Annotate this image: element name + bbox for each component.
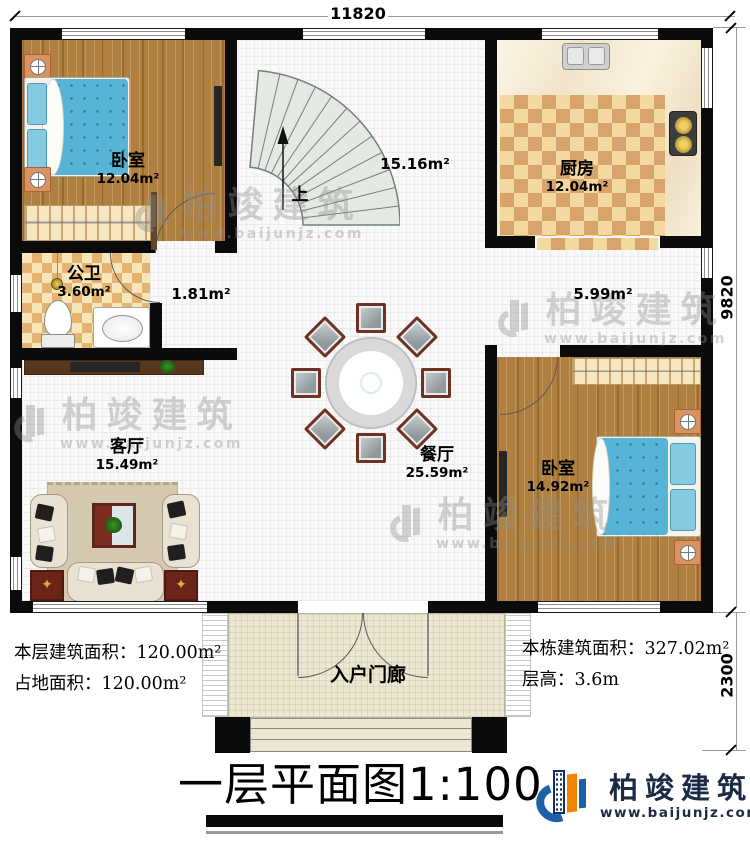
window [538, 601, 660, 613]
window [303, 28, 425, 40]
title-underline-thick [206, 815, 503, 827]
dining-chair [291, 368, 321, 398]
brand-logo-icon [536, 768, 590, 826]
floorplan-canvas: 上 ✦ ✦ [0, 0, 750, 842]
room-label-living: 客厅 15.49m² [96, 438, 159, 473]
nightstand [674, 540, 701, 565]
wall [10, 601, 33, 613]
wall [150, 303, 162, 348]
lamp-icon [30, 59, 46, 75]
dining-table [325, 337, 417, 429]
note-land-area: 占地面积：120.00m² [14, 669, 221, 700]
wall [185, 28, 303, 40]
brand-logo: 柏竣建筑 www.baijunjz.com [536, 768, 750, 826]
nightstand [674, 409, 701, 434]
kitchen-door-opening-floor [537, 238, 658, 250]
sofa-pillow [35, 545, 54, 562]
entry-door-left-leaf [297, 613, 299, 676]
side-table: ✦ [30, 570, 64, 601]
sofa-pillow [169, 523, 188, 541]
window [10, 557, 22, 590]
brand-logo-icon [135, 193, 171, 237]
dim-right-main: 9820 [718, 268, 737, 328]
note-floor-height: 层高：3.6m [522, 665, 729, 696]
title-underline-thin [206, 831, 503, 834]
bed-pillow [27, 83, 47, 125]
sofa-pillow [115, 566, 135, 584]
wall [485, 236, 535, 248]
window [10, 275, 22, 312]
side-table: ✦ [164, 570, 198, 601]
brand-name: 柏竣建筑 [609, 773, 750, 805]
dining-chair [421, 368, 451, 398]
tv [70, 362, 140, 372]
burner-icon [675, 136, 692, 153]
sofa-pillow [134, 566, 153, 584]
wall [10, 348, 237, 360]
window [33, 601, 207, 613]
stove [669, 111, 697, 156]
brand-logo-icon [390, 503, 426, 547]
brand-website: www.baijunjz.com [600, 805, 750, 821]
room-label-bedroom2: 卧室 14.92m² [527, 460, 590, 495]
wall [660, 236, 713, 248]
toilet-tank [41, 334, 75, 348]
window [542, 28, 658, 40]
note-total-area: 本栋建筑面积：327.02m² [522, 634, 729, 665]
area-label-corridor: 5.99m² [573, 286, 632, 303]
sink-basin [567, 47, 584, 65]
room-label-porch: 入户门廊 [330, 665, 406, 687]
wall [425, 28, 542, 40]
sofa-pillow [96, 568, 115, 585]
area-label-vestibule: 1.81m² [171, 286, 230, 303]
sink-basin [588, 47, 605, 65]
bed-pillow [27, 129, 47, 171]
window [62, 28, 185, 40]
wall [485, 40, 497, 248]
room-label-dining: 餐厅 25.59m² [406, 446, 469, 481]
stairs-up-label: 上 [292, 186, 309, 206]
entry-door-right-leaf [427, 613, 429, 676]
room-label-bedroom1: 卧室 12.04m² [97, 152, 160, 187]
window [701, 48, 713, 108]
drawing-title: 一层平面图1:100 [178, 748, 528, 813]
vanity [93, 307, 150, 348]
wall [701, 108, 713, 248]
lamp-icon [680, 545, 696, 561]
sofa-pillow [167, 544, 186, 561]
brand-logo-icon [498, 298, 534, 342]
wardrobe [24, 205, 151, 241]
wall [207, 601, 298, 613]
dining-chair [356, 433, 386, 463]
dim-top: 11820 [328, 4, 388, 23]
window [701, 248, 713, 278]
dining-chair [356, 303, 386, 333]
porch-steps [250, 718, 472, 752]
lamp-icon [680, 414, 696, 430]
nightstand [24, 54, 51, 79]
note-floor-area: 本层建筑面积：120.00m² [14, 638, 221, 669]
area-label-stair-hall: 15.16m² [380, 156, 450, 173]
tv [214, 86, 222, 166]
dim-ext [702, 750, 746, 751]
wall [10, 241, 155, 253]
plant-icon [160, 360, 175, 373]
wall [485, 345, 497, 613]
burner-icon [675, 117, 692, 134]
sofa-pillow [37, 526, 56, 544]
nightstand [24, 167, 51, 192]
kitchen-sink [562, 43, 610, 70]
bed-pillow [670, 489, 696, 531]
wall [701, 28, 713, 48]
room-label-kitchen: 厨房 12.04m² [546, 160, 609, 195]
window [10, 368, 22, 398]
note-right: 本栋建筑面积：327.02m² 层高：3.6m [522, 634, 729, 696]
bed-pillow [670, 443, 696, 485]
dim-tick [725, 22, 736, 33]
lamp-icon [30, 172, 46, 188]
room-label-bathroom: 公卫 3.60m² [57, 265, 110, 300]
sofa-pillow [35, 503, 55, 521]
note-left: 本层建筑面积：120.00m² 占地面积：120.00m² [14, 638, 221, 700]
wall [215, 241, 237, 253]
brand-logo-icon [14, 403, 50, 447]
watermark: 柏竣建筑 www.baijunjz.com [135, 188, 364, 242]
toilet [44, 300, 72, 337]
wall [428, 601, 538, 613]
wardrobe [572, 358, 701, 385]
sink [102, 315, 143, 342]
watermark: 柏竣建筑 www.baijunjz.com [390, 498, 619, 552]
plant-icon [105, 517, 122, 533]
wall [10, 28, 22, 275]
sofa-pillow [77, 566, 96, 584]
